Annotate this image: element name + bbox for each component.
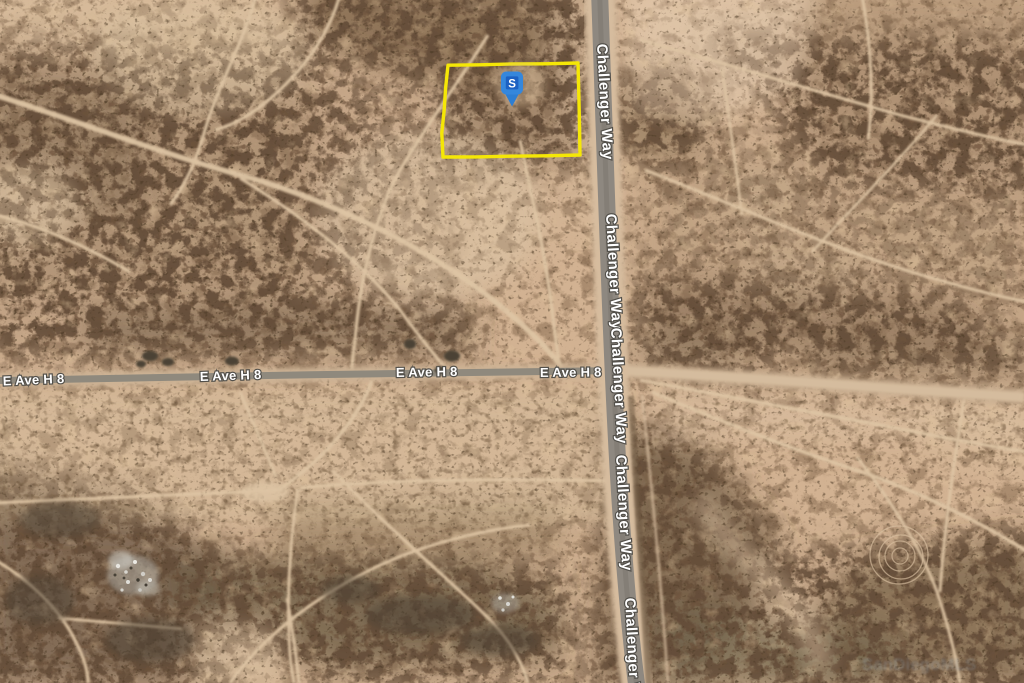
svg-text:E Ave H 8: E Ave H 8 [396,364,458,380]
svg-text:E Ave H 8: E Ave H 8 [540,364,602,380]
svg-text:E Ave H 8: E Ave H 8 [200,367,262,384]
svg-text:E Ave H 8: E Ave H 8 [2,371,64,389]
svg-text:SanDiegoMLS: SanDiegoMLS [862,655,976,674]
svg-text:S: S [508,78,516,90]
